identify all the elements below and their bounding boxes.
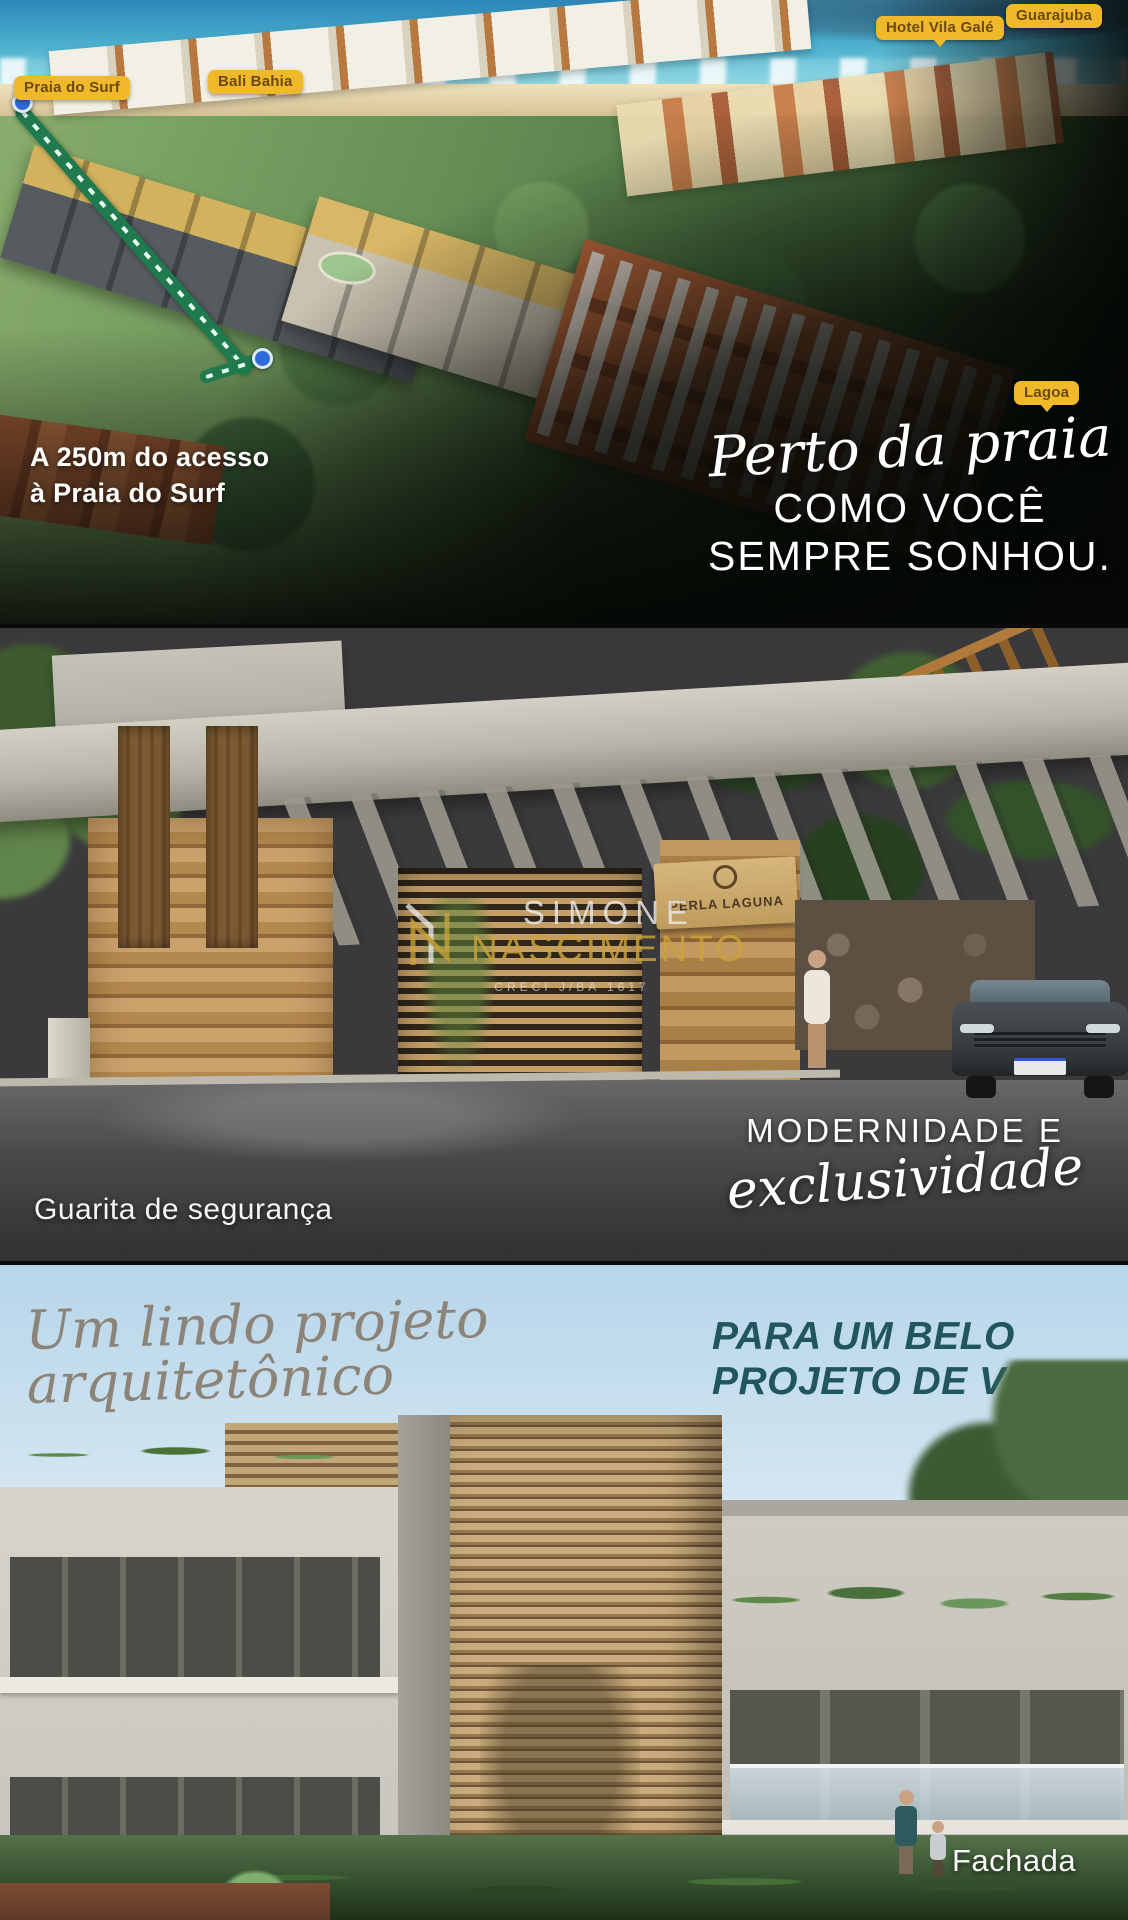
car-wheel-left xyxy=(966,1076,996,1098)
tag-label: Praia do Surf xyxy=(24,79,120,96)
tag-pointer xyxy=(933,39,947,47)
wood-door xyxy=(206,726,258,948)
roof-slab xyxy=(722,1500,1128,1516)
car-wheel-right xyxy=(1084,1076,1114,1098)
distance-note-line2: à Praia do Surf xyxy=(30,476,269,512)
watermark-logo xyxy=(397,897,461,969)
balcony-slab xyxy=(0,1677,400,1693)
aerial-headline: Perto da praia COMO VOCÊ SEMPRE SONHOU. xyxy=(700,420,1120,581)
watermark-creci: CRECI J/BA 1617 xyxy=(392,980,752,994)
watermark-name-line2: NASCIMENTO xyxy=(471,929,747,970)
suv-car xyxy=(952,980,1128,1098)
pedestrian-figure xyxy=(800,950,834,1072)
aerial-headline-script: Perto da praia xyxy=(699,409,1121,487)
location-tag-bali-bahia: Bali Bahia xyxy=(208,70,303,94)
realtor-watermark: SIMONE NASCIMENTO CRECI J/BA 1617 xyxy=(392,896,752,994)
balcony-slab xyxy=(722,1820,1128,1834)
tag-label: Lagoa xyxy=(1024,384,1069,401)
tag-label: Guarajuba xyxy=(1016,7,1092,24)
hanging-plants-left xyxy=(0,1435,390,1475)
property-flyer: Praia do Surf Bali Bahia Hotel Vila Galé… xyxy=(0,0,1128,1920)
watermark-name-line1: SIMONE xyxy=(471,896,747,929)
facade-caption: Fachada xyxy=(952,1843,1076,1879)
pedestrian-child xyxy=(928,1821,948,1877)
location-tag-praia-do-surf: Praia do Surf xyxy=(14,76,130,100)
map-pin-condo xyxy=(252,348,273,369)
pedestrian-adult xyxy=(893,1790,919,1876)
aerial-panel: Praia do Surf Bali Bahia Hotel Vila Galé… xyxy=(0,0,1128,628)
tag-label: Hotel Vila Galé xyxy=(886,19,994,36)
sign-emblem-icon xyxy=(713,864,738,889)
facade-panel: Um lindo projeto arquitetônico PARA UM B… xyxy=(0,1265,1128,1920)
location-tag-guarajuba: Guarajuba xyxy=(1006,4,1102,28)
glass-railing xyxy=(730,1764,1124,1820)
distance-note: A 250m do acesso à Praia do Surf xyxy=(30,440,269,511)
facade-headline-script: Um lindo projeto arquitetônico xyxy=(25,1286,718,1412)
car-headlight-left xyxy=(960,1024,994,1033)
tag-label: Bali Bahia xyxy=(218,73,293,90)
car-license-plate xyxy=(1014,1058,1066,1075)
hanging-plants-right xyxy=(726,1565,1126,1635)
distance-note-line1: A 250m do acesso xyxy=(30,440,269,476)
gatehouse-caption: Guarita de segurança xyxy=(34,1193,333,1227)
glass-balcony xyxy=(730,1690,1124,1820)
balcony-openings xyxy=(10,1557,380,1677)
car-grille xyxy=(974,1032,1106,1048)
wood-door xyxy=(118,726,170,948)
location-tag-hotel-vila-gale: Hotel Vila Galé xyxy=(876,16,1004,40)
gatehouse-headline: MODERNIDADE E exclusividade xyxy=(700,1112,1110,1207)
gatehouse-panel: PERLA LAGUNA xyxy=(0,628,1128,1265)
car-headlight-right xyxy=(1086,1024,1120,1033)
aerial-headline-caps: COMO VOCÊ SEMPRE SONHOU. xyxy=(700,484,1120,581)
location-tag-lagoa: Lagoa xyxy=(1014,381,1079,405)
walkway xyxy=(0,1883,330,1920)
